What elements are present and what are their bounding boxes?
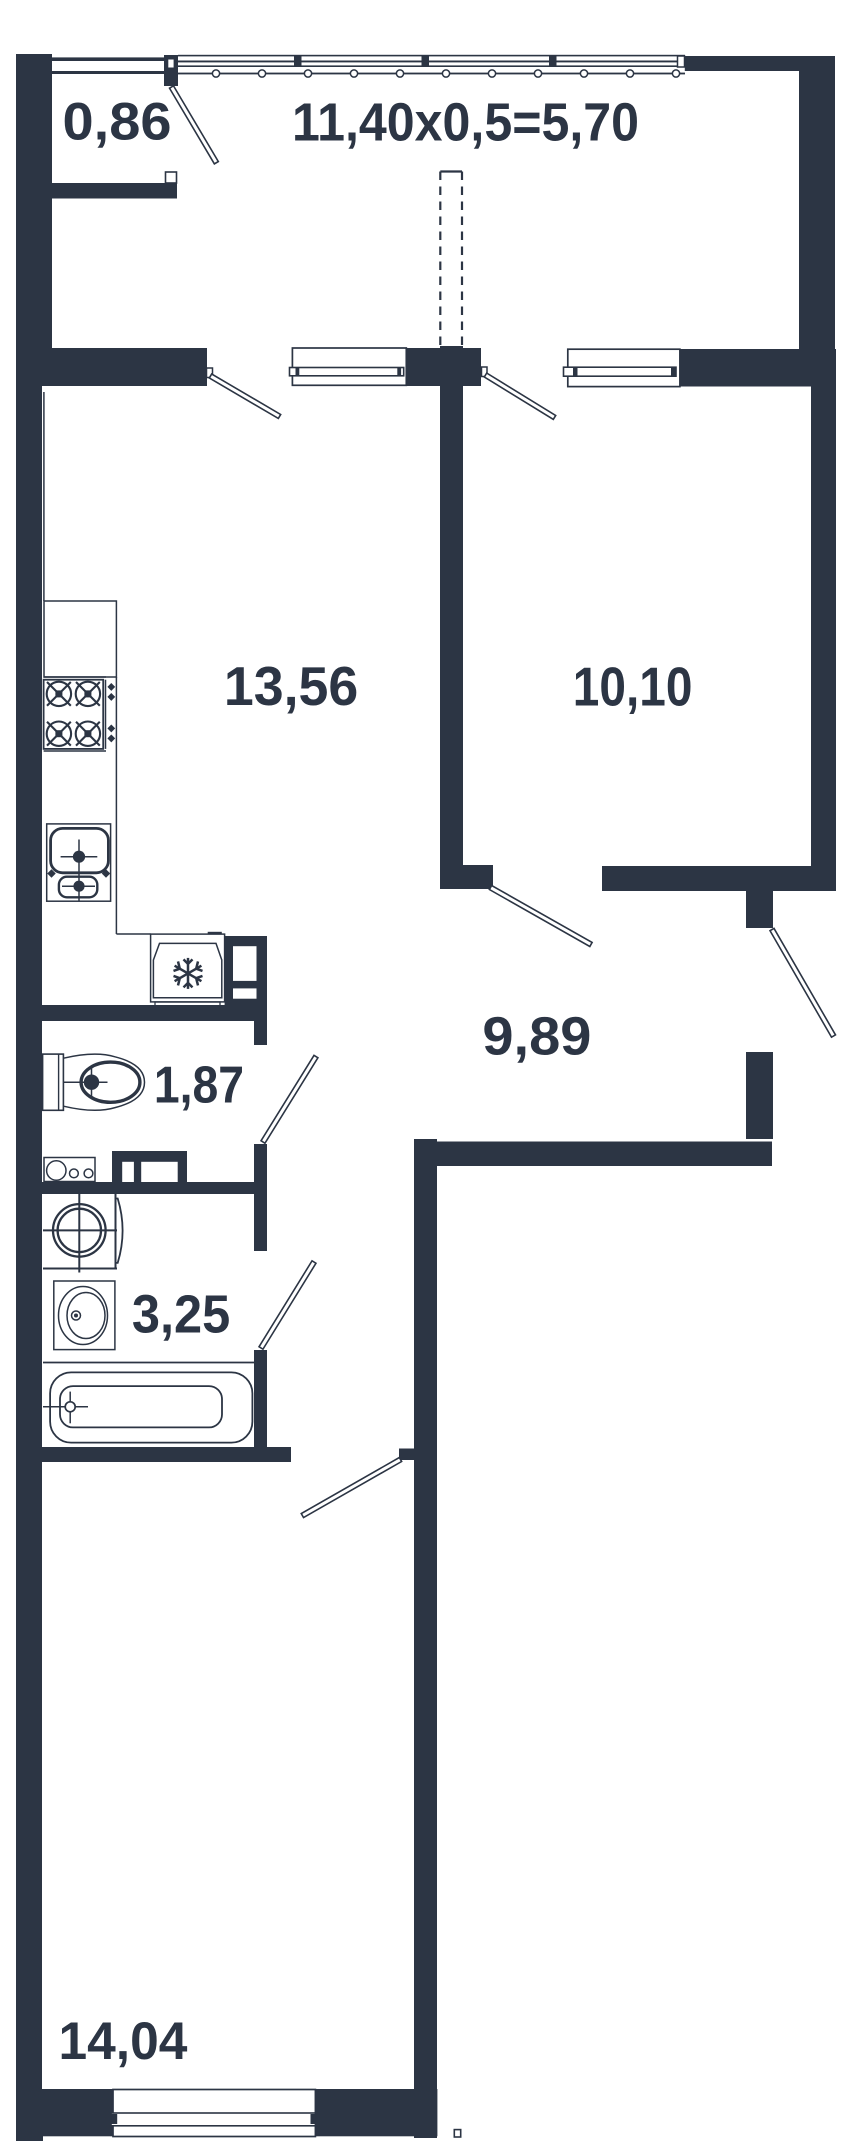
svg-text:3,25: 3,25 <box>132 1285 230 1345</box>
svg-text:9,89: 9,89 <box>482 1007 591 1067</box>
svg-text:0,86: 0,86 <box>63 93 172 152</box>
svg-text:10,10: 10,10 <box>573 656 693 718</box>
svg-text:14,04: 14,04 <box>59 2012 188 2071</box>
svg-text:1,87: 1,87 <box>154 1057 244 1115</box>
svg-text:11,40x0,5=5,70: 11,40x0,5=5,70 <box>292 93 639 153</box>
svg-text:13,56: 13,56 <box>224 655 358 717</box>
